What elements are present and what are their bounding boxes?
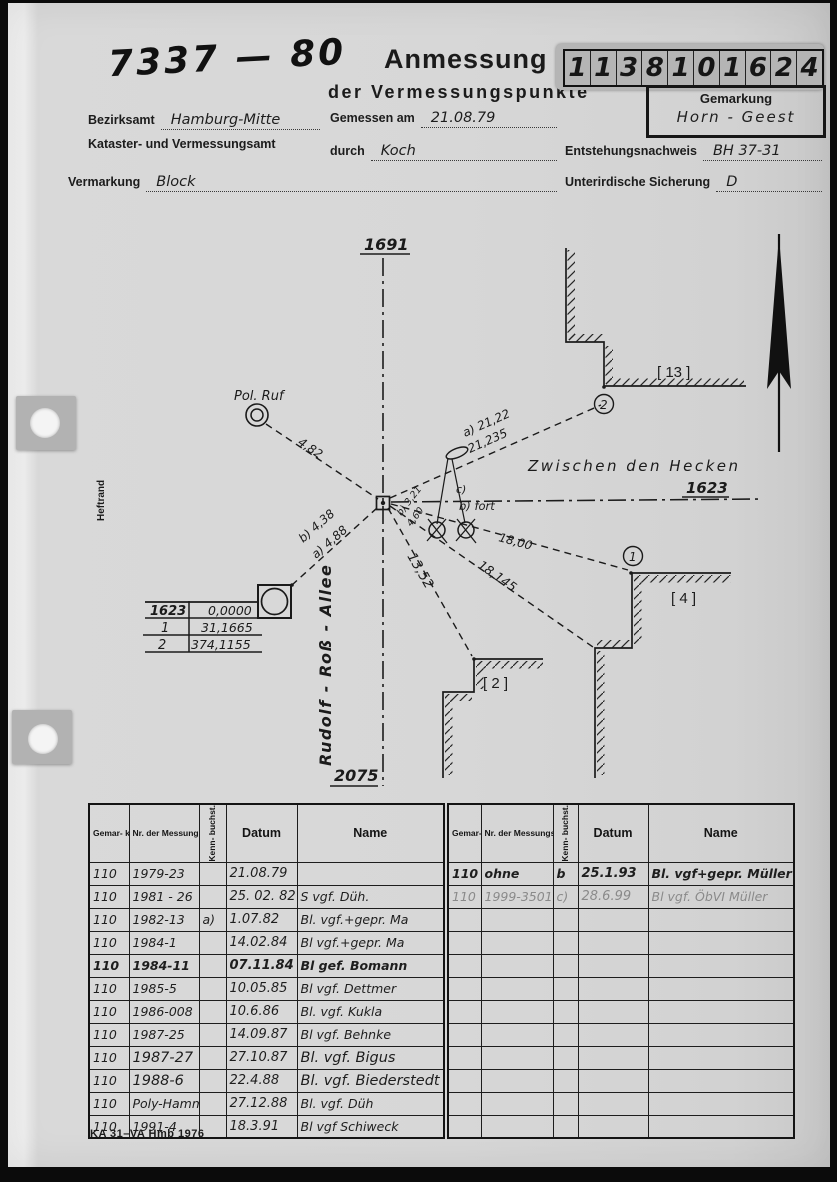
heftrand-label: Heftrand	[96, 480, 107, 521]
table-row	[448, 931, 794, 954]
bearing-val: 0,0000	[208, 603, 252, 618]
bearing-pt: 1	[161, 621, 169, 636]
table-row: 1101984-114.02.84Bl vgf.+gepr. Ma	[89, 931, 444, 954]
bearing-val: 31,1665	[201, 620, 253, 635]
table-row	[448, 1115, 794, 1138]
corner-dot	[472, 657, 476, 661]
ref-point-square	[258, 585, 291, 618]
scanned-survey-document: 7337 — 80 Anmessung der Vermessungspunkt…	[0, 0, 837, 1182]
table-row: 1101984-1107.11.84Bl gef. Bomann	[89, 954, 444, 977]
table-row	[448, 1000, 794, 1023]
hatch	[568, 250, 576, 340]
hatch	[569, 334, 603, 342]
street-name-horizontal: Zwischen den Hecken	[527, 457, 741, 475]
central-point-dot	[381, 501, 385, 505]
boundary-13	[566, 248, 746, 386]
street-name-vertical: Rudolf - Roß - Allee	[316, 564, 335, 766]
registry-table-right: Gemar- kungs- schlüssel Nr. der Messungs…	[447, 803, 795, 1139]
hatch	[635, 575, 731, 583]
tie-line-polruf	[266, 424, 378, 499]
hatch	[606, 346, 614, 384]
table-row: 1101988-622.4.88Bl. vgf. Biederstedt	[89, 1069, 444, 1092]
table-row: 1101981 - 2625. 02. 82S vgf. Düh.	[89, 885, 444, 908]
table-row	[448, 1023, 794, 1046]
hatch	[479, 661, 543, 669]
table-row	[448, 977, 794, 1000]
parcel-label-13: [ 13 ]	[657, 364, 690, 381]
table-row: 1101985-510.05.85Bl vgf. Dettmer	[89, 977, 444, 1000]
point-label-2075: 2075	[334, 766, 379, 785]
parcel-label-4: [ 4 ]	[671, 590, 696, 607]
distance-18-00: 18,00	[497, 530, 534, 553]
hatch	[445, 697, 453, 775]
table-row	[448, 1069, 794, 1092]
bearing-pt: 1623	[150, 604, 186, 619]
table-row: 1101999-3501c)28.6.99Bl vgf. ÖbVI Müller	[448, 885, 794, 908]
point-label-1623: 1623	[686, 479, 728, 497]
distance-13-52: 13,52	[404, 550, 437, 591]
pol-ruf-symbol-inner	[251, 409, 263, 421]
street-axis-horizontal	[391, 499, 762, 502]
table-row: 110Poly-Hamm27.12.88Bl. vgf. Düh	[89, 1092, 444, 1115]
distance-4-82: 4,82	[295, 435, 325, 462]
note-c: c)	[456, 483, 466, 496]
pol-ruf-symbol	[246, 404, 268, 426]
table-row: 110ohneb25.1.93Bl. vgf+gepr. Müller	[448, 862, 794, 885]
note-b-fort: b) fort	[459, 499, 495, 513]
table-row	[448, 1046, 794, 1069]
registry-table-left: Gemar- kungs- schlüssel Nr. der Messungs…	[88, 803, 445, 1139]
corner-dot	[290, 583, 294, 587]
bearing-val: 374,1155	[191, 637, 251, 652]
table-row: 1101987-2727.10.87Bl. vgf. Bigus	[89, 1046, 444, 1069]
distance-18-145: 18,145	[475, 557, 519, 594]
p1-number: 1	[629, 550, 637, 564]
hatch	[597, 651, 605, 775]
hatch	[634, 578, 642, 644]
boundary-4	[595, 573, 731, 778]
table-row: 1101982-13a)1.07.82Bl. vgf.+gepr. Ma	[89, 908, 444, 931]
table-row: 1101987-2514.09.87Bl vgf. Behnke	[89, 1023, 444, 1046]
table-header-row: Gemar- kungs- schlüssel Nr. der Messungs…	[89, 804, 444, 862]
ref-point-circle	[262, 589, 288, 615]
pol-ruf-label: Pol. Ruf	[234, 389, 286, 404]
sketch-leg	[437, 458, 448, 524]
bearing-pt: 2	[158, 638, 166, 653]
hatch	[597, 640, 630, 648]
table-header-row: Gemar- kungs- schlüssel Nr. der Messungs…	[448, 804, 794, 862]
parcel-label-2: [ 2 ]	[483, 675, 508, 692]
table-row	[448, 1092, 794, 1115]
table-row: 1101986-00810.6.86Bl. vgf. Kukla	[89, 1000, 444, 1023]
table-row: 1101979-2321.08.79	[89, 862, 444, 885]
table-row	[448, 908, 794, 931]
table-row	[448, 954, 794, 977]
north-arrow-head	[767, 236, 791, 389]
form-code: KA 31–VA Hmb 1976	[90, 1128, 204, 1140]
p2-number: 2	[600, 398, 608, 412]
point-label-1691: 1691	[364, 235, 409, 254]
